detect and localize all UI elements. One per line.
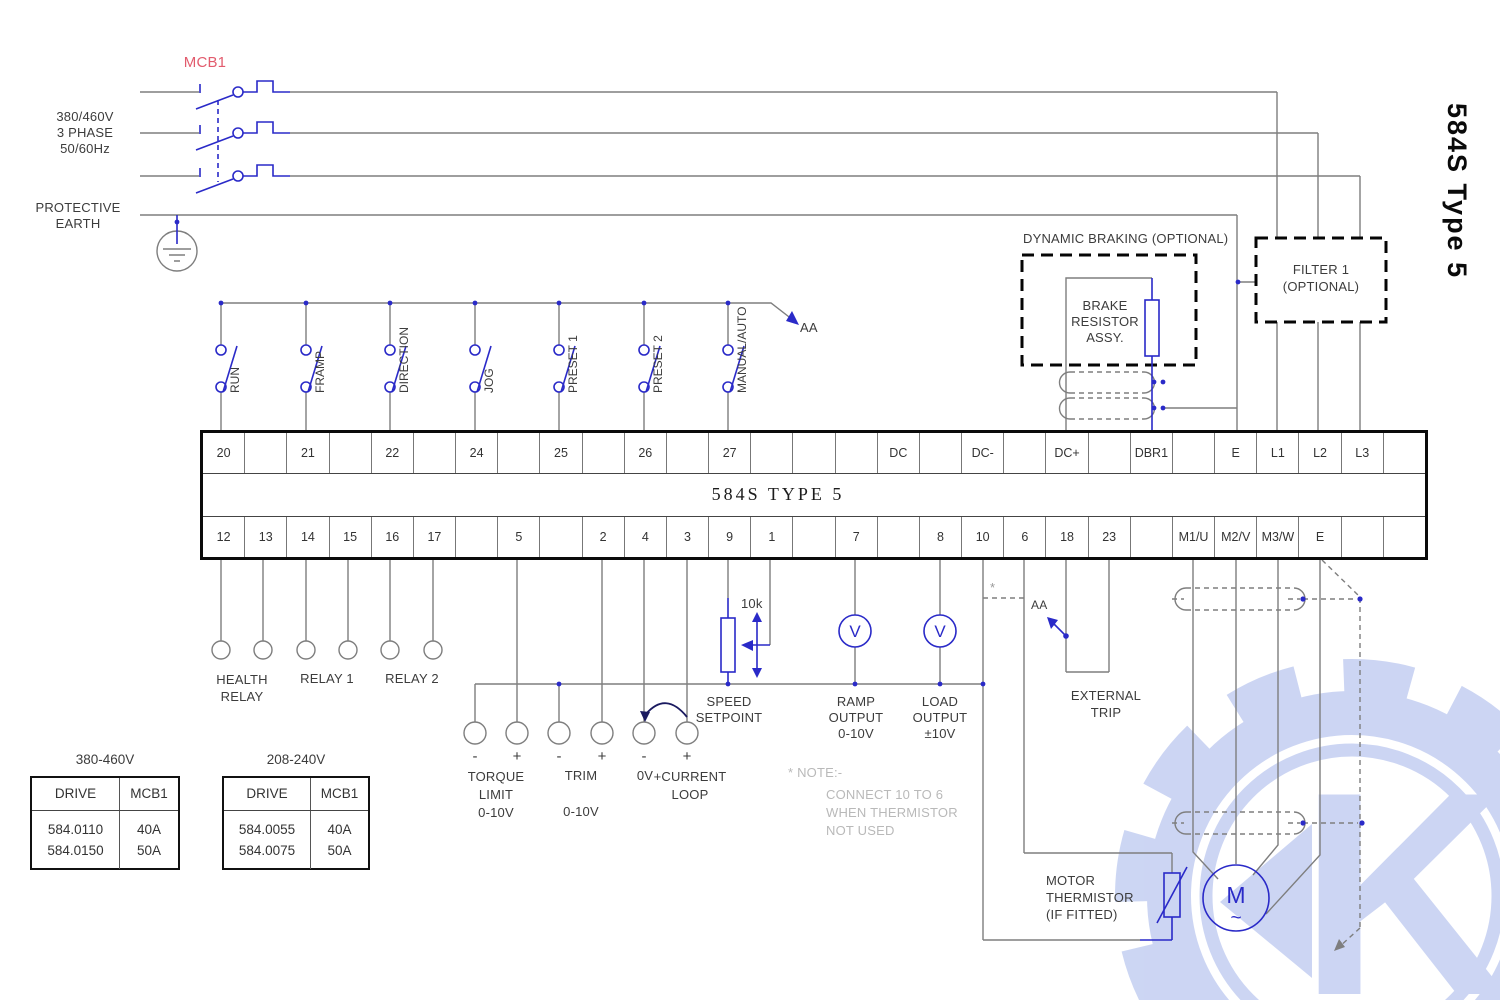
aa-trip-label: AA <box>1031 597 1047 613</box>
switch-label-preset-2: PRESET 2 <box>651 335 665 393</box>
terminal-m3-w: M3/W <box>1257 517 1299 557</box>
terminal-13: 13 <box>245 517 287 557</box>
load-line-2: OUTPUT <box>890 710 990 726</box>
health-line-2: RELAY <box>192 688 292 705</box>
supply-line-1: 380/460V <box>35 109 135 125</box>
terminal-blank <box>330 433 372 473</box>
terminal-8: 8 <box>920 517 962 557</box>
terminal-9: 9 <box>709 517 751 557</box>
terminal-blank <box>1342 517 1384 557</box>
plus-sign: + <box>672 748 702 765</box>
terminal-4: 4 <box>625 517 667 557</box>
terminal-blank <box>498 433 540 473</box>
terminal-dc-: DC- <box>962 433 1004 473</box>
terminal-blank <box>414 433 456 473</box>
plus-sign: + <box>502 748 532 765</box>
minus-sign: - <box>544 748 574 765</box>
motor-thermistor-label: MOTOR THERMISTOR (IF FITTED) <box>1046 872 1158 923</box>
terminal-e: E <box>1299 517 1341 557</box>
terminal-6: 6 <box>1004 517 1046 557</box>
terminal-24: 24 <box>456 433 498 473</box>
cl-line-2: LOOP <box>645 786 735 804</box>
terminal-l1: L1 <box>1257 433 1299 473</box>
switch-label-jog: JOG <box>482 368 496 393</box>
terminal-blank <box>751 433 793 473</box>
rating-table: DRIVEMCB1584.0055584.007540A50A <box>222 776 370 870</box>
terminal-blank <box>1004 433 1046 473</box>
table-header-drive: DRIVE <box>224 778 311 810</box>
terminal-blank <box>245 433 287 473</box>
terminal-blank <box>667 433 709 473</box>
mcb1-label: MCB1 <box>175 55 235 71</box>
logo-letter: K <box>1299 732 1500 1000</box>
load-output-label: LOAD OUTPUT ±10V <box>890 694 990 742</box>
drive-model: 584.0075 <box>224 840 310 861</box>
terminal-blank <box>583 433 625 473</box>
filter-label: FILTER 1 (OPTIONAL) <box>1258 261 1384 295</box>
mcb-rating: 50A <box>120 840 178 861</box>
brake-line-2: RESISTOR <box>1068 314 1142 330</box>
filter-line-1: FILTER 1 <box>1258 261 1384 278</box>
terminal-m1-u: M1/U <box>1173 517 1215 557</box>
terminal-18: 18 <box>1046 517 1088 557</box>
drive-model: 584.0055 <box>224 819 310 840</box>
note-line-1: CONNECT 10 TO 6 <box>826 786 958 804</box>
speed-setpoint-label: SPEED SETPOINT <box>679 694 779 726</box>
trip-line-1: EXTERNAL <box>1046 687 1166 704</box>
motor-icon: M <box>1226 882 1245 908</box>
terminal-7: 7 <box>836 517 878 557</box>
earth-line-1: PROTECTIVE <box>28 200 128 216</box>
terminal-blank <box>1173 433 1215 473</box>
ramp-voltmeter-icon: V <box>849 622 861 641</box>
minus-sign: - <box>460 748 490 765</box>
table-title: 380-460V <box>30 752 180 767</box>
current-loop-label: +CURRENT LOOP <box>645 768 735 804</box>
drive-band: 584S TYPE 5 <box>203 474 1425 516</box>
terminal-dc: DC <box>878 433 920 473</box>
filter-line-2: (OPTIONAL) <box>1258 278 1384 295</box>
terminal-dc-: DC+ <box>1046 433 1088 473</box>
terminal-23: 23 <box>1089 517 1131 557</box>
earth-line-2: EARTH <box>28 216 128 232</box>
mcb-rating: 40A <box>311 819 368 840</box>
terminal-2: 2 <box>583 517 625 557</box>
load-line-3: ±10V <box>890 726 990 742</box>
terminal-21: 21 <box>287 433 329 473</box>
mcb-rating: 50A <box>311 840 368 861</box>
terminal-e: E <box>1215 433 1257 473</box>
brake-resistor-label: BRAKE RESISTOR ASSY. <box>1068 298 1142 346</box>
terminal-blank <box>1384 433 1425 473</box>
terminal-blank <box>1131 517 1173 557</box>
trim-range-label: 0-10V <box>531 804 631 820</box>
terminal-blank <box>878 517 920 557</box>
terminal-l2: L2 <box>1299 433 1341 473</box>
terminal-row-bottom: 121314151617524391781061823M1/UM2/VM3/WE <box>203 517 1425 557</box>
terminal-5: 5 <box>498 517 540 557</box>
switch-label-direction: DIRECTION <box>397 327 411 393</box>
plus-sign: + <box>587 748 617 765</box>
terminal-blank <box>793 433 835 473</box>
terminal-row-top: 20212224252627DCDC-DC+DBR1EL1L2L3 <box>203 433 1425 473</box>
supply-line-2: 3 PHASE <box>35 125 135 141</box>
switch-label-manual-auto: MANUAL/AUTO <box>735 307 749 393</box>
supply-voltage-label: 380/460V 3 PHASE 50/60Hz <box>35 109 135 157</box>
brake-line-3: ASSY. <box>1068 330 1142 346</box>
terminal-15: 15 <box>330 517 372 557</box>
note-asterisk: * <box>990 580 995 596</box>
terminal-3: 3 <box>667 517 709 557</box>
drive-title: 584S TYPE 5 <box>203 484 1353 505</box>
note-body: CONNECT 10 TO 6 WHEN THERMISTOR NOT USED <box>826 786 958 840</box>
drive-model: 584.0110 <box>32 819 119 840</box>
minus-sign: - <box>629 748 659 765</box>
terminal-blank <box>456 517 498 557</box>
watermark-gear-logo: K <box>1144 688 1500 1000</box>
table-header-drive: DRIVE <box>32 778 120 810</box>
cl-line-1: +CURRENT <box>645 768 735 786</box>
therm-line-3: (IF FITTED) <box>1046 906 1158 923</box>
terminal-l3: L3 <box>1342 433 1384 473</box>
terminal-1: 1 <box>751 517 793 557</box>
therm-line-2: THERMISTOR <box>1046 889 1158 906</box>
external-trip-label: EXTERNAL TRIP <box>1046 687 1166 721</box>
therm-line-1: MOTOR <box>1046 872 1158 889</box>
terminal-blank <box>920 433 962 473</box>
pot-value-label: 10k <box>741 596 763 612</box>
terminal-blank <box>1384 517 1425 557</box>
schematic-canvas: K <box>0 0 1500 1000</box>
table-title: 208-240V <box>222 752 370 767</box>
terminal-22: 22 <box>372 433 414 473</box>
trip-line-2: TRIP <box>1046 704 1166 721</box>
note-line-3: NOT USED <box>826 822 958 840</box>
mcb-rating: 40A <box>120 819 178 840</box>
motor-ac-tilde: ~ <box>1230 908 1241 929</box>
switch-label-framp: FRAMP <box>313 351 327 393</box>
drive-model: 584.0150 <box>32 840 119 861</box>
terminal-14: 14 <box>287 517 329 557</box>
relay2-label: RELAY 2 <box>362 671 462 687</box>
note-line-2: WHEN THERMISTOR <box>826 804 958 822</box>
aa-top-label: AA <box>800 320 818 336</box>
terminal-blank <box>793 517 835 557</box>
supply-line-3: 50/60Hz <box>35 141 135 157</box>
protective-earth-label: PROTECTIVE EARTH <box>28 200 128 232</box>
dynamic-braking-label: DYNAMIC BRAKING (OPTIONAL) <box>1023 231 1203 247</box>
switch-label-preset-1: PRESET 1 <box>566 335 580 393</box>
table-header-mcb1: MCB1 <box>311 778 368 810</box>
load-line-1: LOAD <box>890 694 990 710</box>
terminal-26: 26 <box>625 433 667 473</box>
terminal-25: 25 <box>540 433 582 473</box>
terminal-m2-v: M2/V <box>1215 517 1257 557</box>
brake-line-1: BRAKE <box>1068 298 1142 314</box>
load-voltmeter-icon: V <box>934 622 946 641</box>
torque-line-2: LIMIT <box>446 786 546 804</box>
table-header-mcb1: MCB1 <box>120 778 178 810</box>
note-head: * NOTE:- <box>788 765 842 781</box>
terminal-16: 16 <box>372 517 414 557</box>
switch-label-run: RUN <box>228 367 242 393</box>
speed-line-2: SETPOINT <box>679 710 779 726</box>
terminal-10: 10 <box>962 517 1004 557</box>
terminal-dbr1: DBR1 <box>1131 433 1173 473</box>
page-title-vertical: 584S Type 5 <box>1441 103 1472 279</box>
speed-line-1: SPEED <box>679 694 779 710</box>
terminal-blank <box>1089 433 1131 473</box>
terminal-blank <box>540 517 582 557</box>
terminal-12: 12 <box>203 517 245 557</box>
terminal-block: 20212224252627DCDC-DC+DBR1EL1L2L3 584S T… <box>200 430 1428 560</box>
rating-table: DRIVEMCB1584.0110584.015040A50A <box>30 776 180 870</box>
terminal-27: 27 <box>709 433 751 473</box>
terminal-20: 20 <box>203 433 245 473</box>
trim-label: TRIM <box>531 768 631 784</box>
terminal-blank <box>836 433 878 473</box>
terminal-17: 17 <box>414 517 456 557</box>
